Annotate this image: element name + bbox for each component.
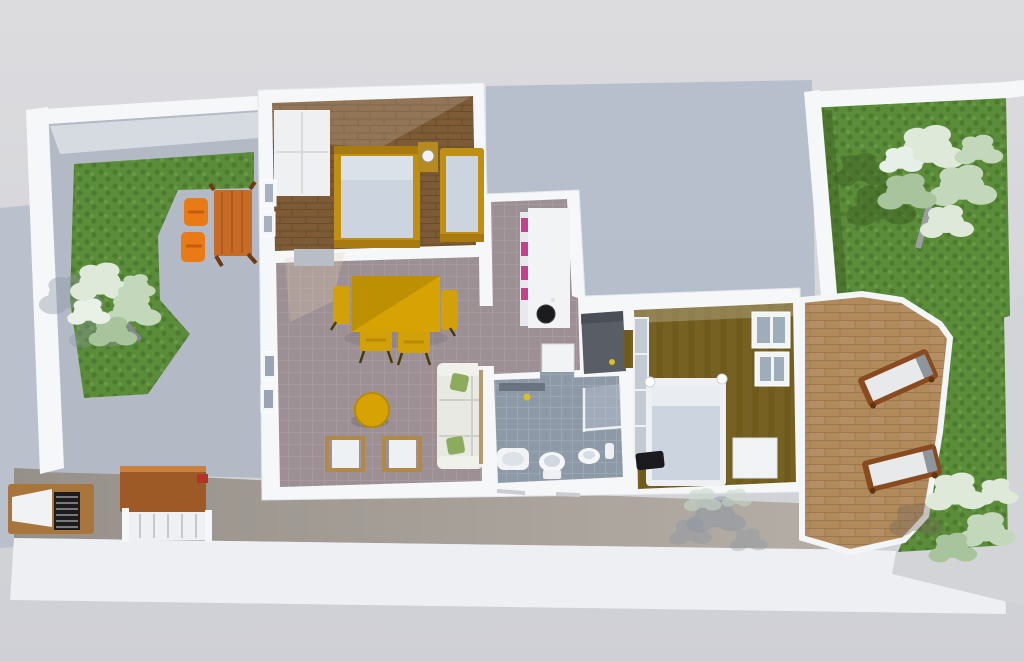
storage-room [581,311,626,374]
pillow-sheet [652,386,720,406]
window-glass [264,216,272,232]
green-pillow [449,373,469,393]
table-top-edge [120,466,206,472]
dining-chair [441,290,458,330]
window-glass [760,357,771,381]
window-glass [757,317,770,343]
sofa [437,363,483,469]
single-bed [334,146,420,248]
living-dining-room [261,249,483,487]
kitchen-hall [478,199,580,378]
deck-chair [327,438,363,470]
toilet-tank [543,470,561,479]
bathroom-shelf [499,383,545,391]
doorway-living-hall [478,306,496,366]
bed-post [717,374,727,384]
doorway-bathroom [540,372,574,382]
magenta-cabinet-door [521,288,529,300]
sofa-armrest [437,456,483,469]
dining-chair [333,286,350,324]
coffee-table [355,393,389,427]
sofa-wood-base [479,370,483,464]
pillow-sheet [341,156,413,180]
footboard [334,240,420,248]
sink [537,305,555,323]
clock [422,150,434,162]
bathroom [494,372,623,483]
nightstand [733,438,777,478]
magenta-cabinet-door [521,218,529,232]
deck-chair-seat [389,440,416,468]
footboard [440,234,484,242]
ceiling-light [524,394,531,401]
barbecue-grill [54,492,80,530]
floorplan-render [0,0,1024,661]
toilet-bowl [544,455,560,467]
double-bed [645,374,727,486]
bedroom-2 [624,303,796,489]
open-shelving [634,318,648,458]
bedroom-1 [261,96,484,251]
washbasin-bowl [502,452,524,466]
doorway-bedroom1 [294,249,334,266]
shower-glass-panel [584,384,621,432]
headboard [334,146,420,154]
single-bed [440,148,484,242]
magenta-cabinet-door [521,242,529,256]
magenta-cabinet-door [521,266,529,280]
window-glass [264,390,273,408]
mattress [446,156,478,232]
window-glass [774,357,784,381]
window-glass [265,184,273,202]
faucet [551,298,555,302]
patio-wood-table [120,466,206,512]
window-glass [773,317,785,343]
bidet-bowl [583,451,595,459]
pedestal-column [605,443,614,459]
garden-table [214,190,252,256]
floor-drain [609,359,615,365]
dark-bag [635,451,665,471]
floorplan-svg [0,0,1024,661]
deck-chair-seat [332,440,359,468]
bed-post [645,377,655,387]
gate-post [205,510,212,542]
deck-chair [384,438,420,470]
red-object [197,474,208,483]
gate-post [122,508,129,542]
window-glass [265,356,274,376]
green-pillow [446,436,466,456]
